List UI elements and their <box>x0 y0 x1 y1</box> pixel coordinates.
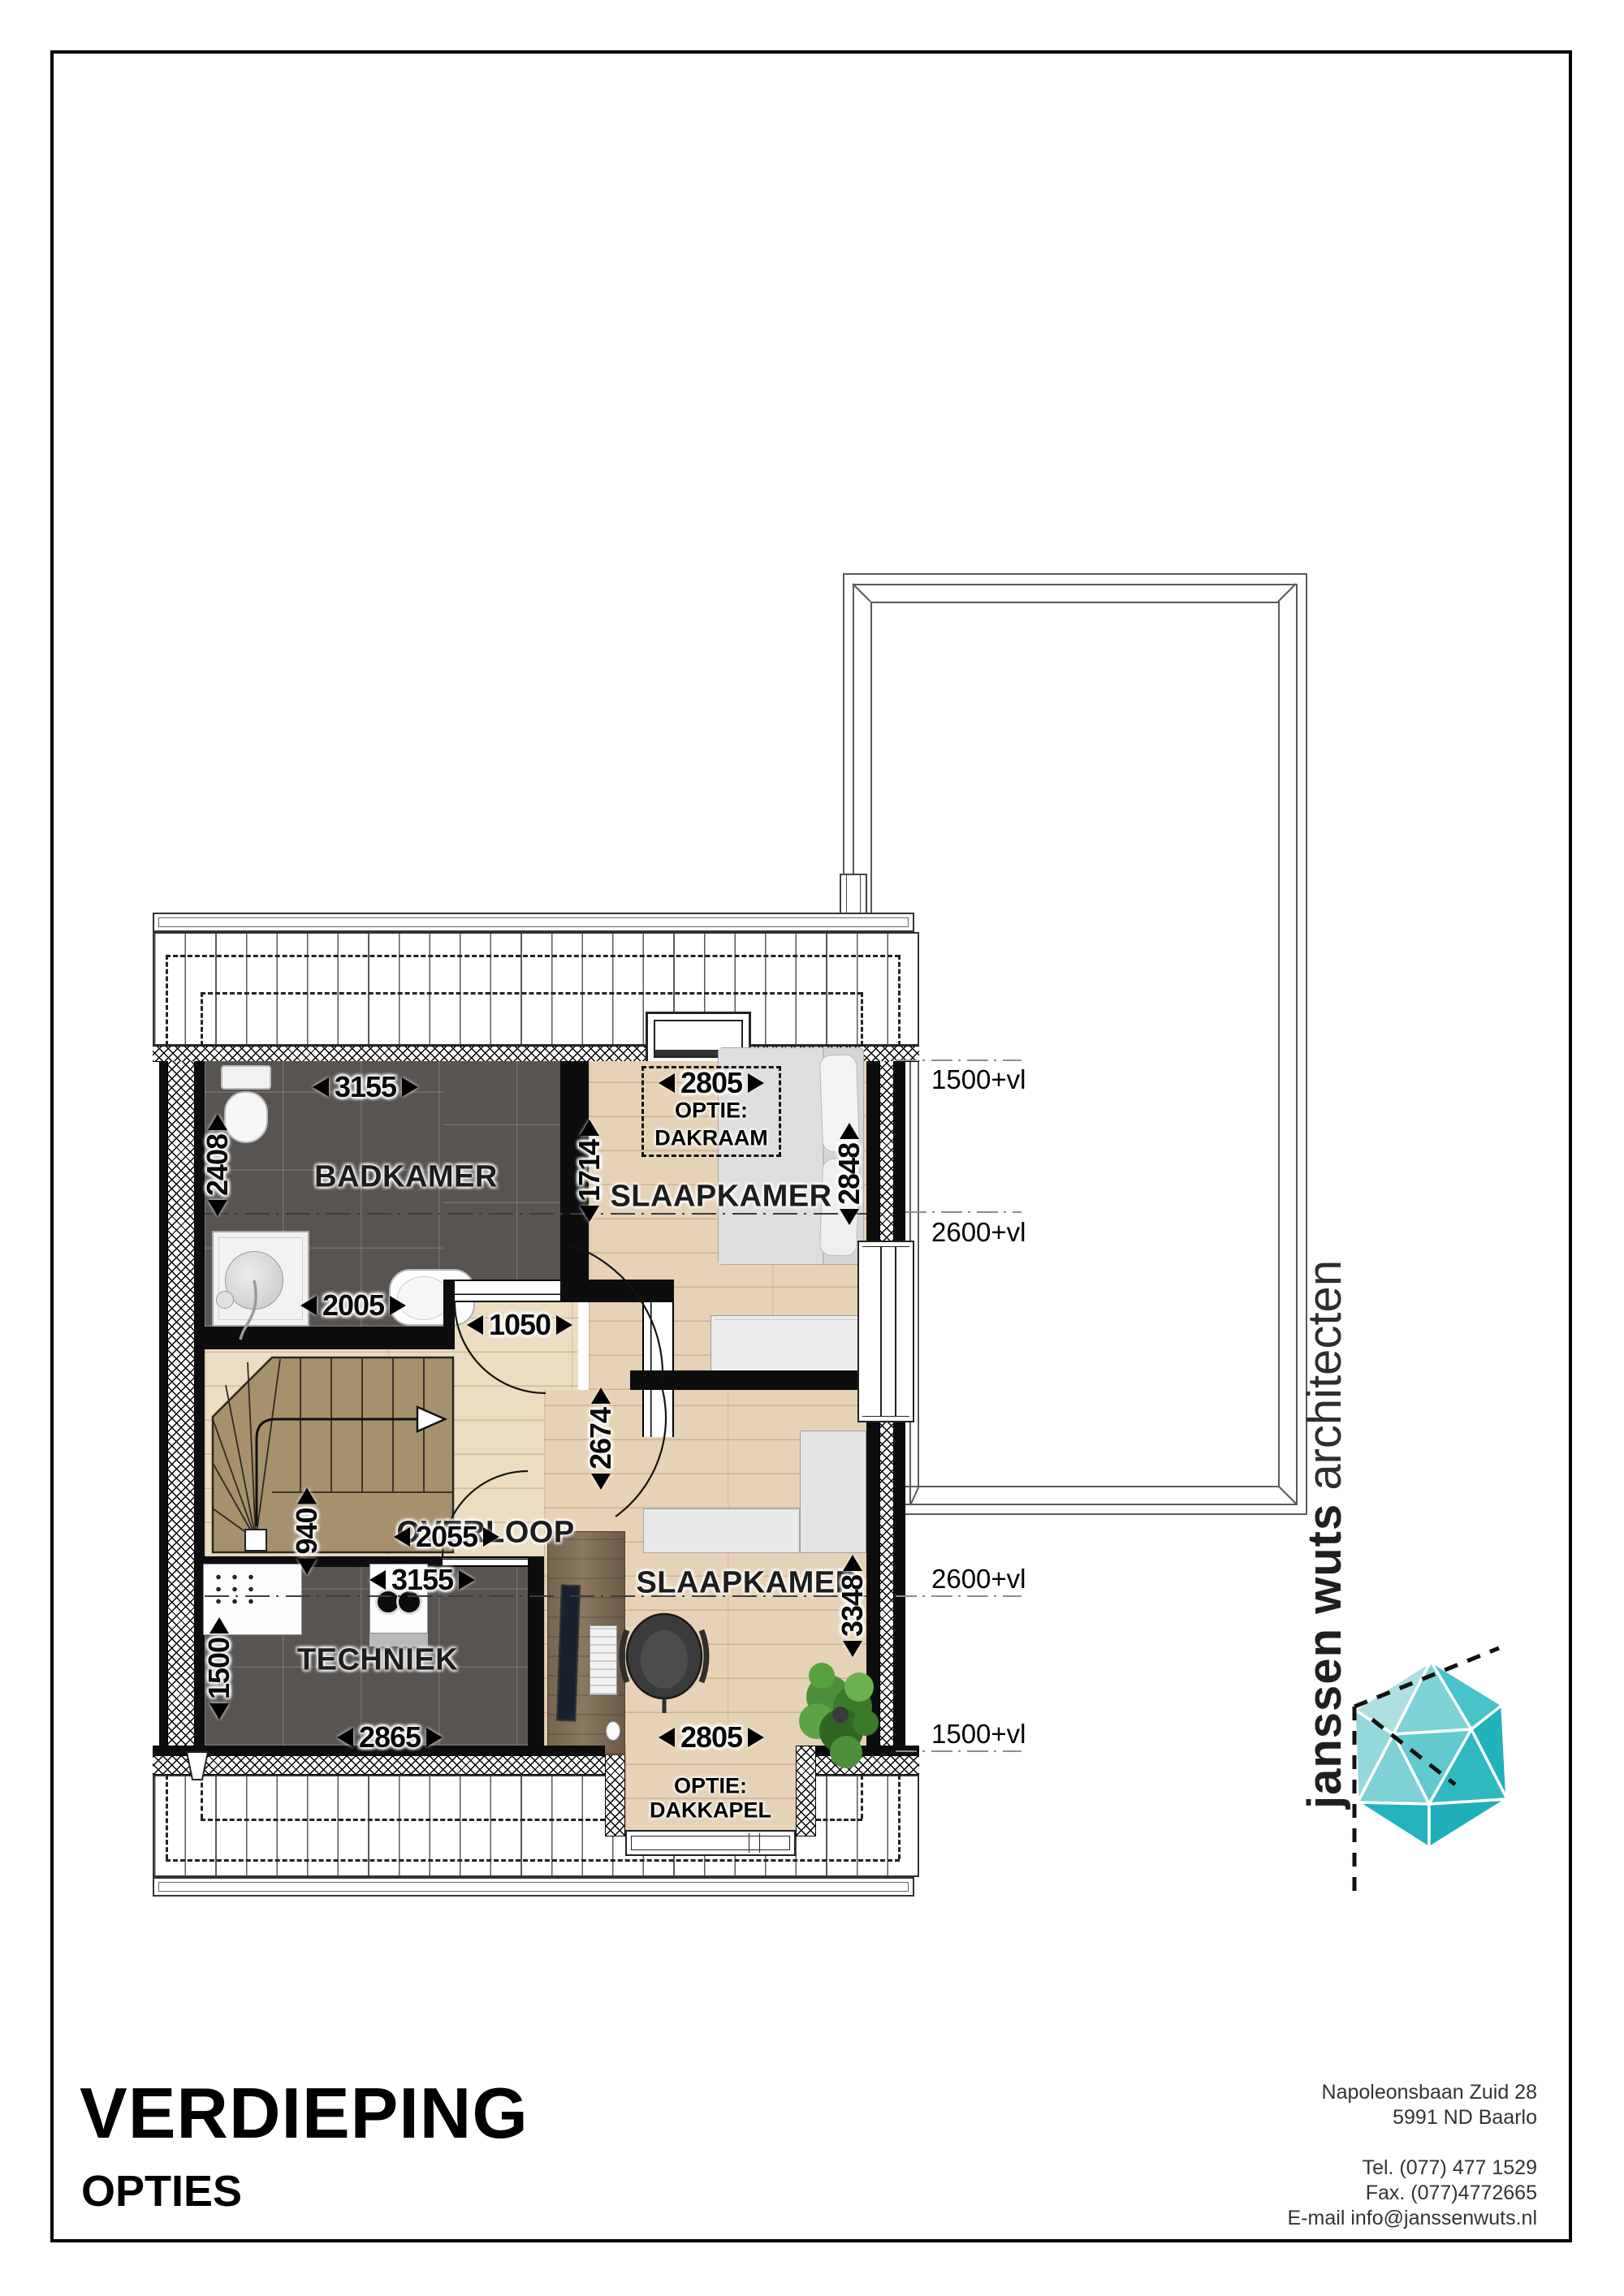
level-label-4: 1500+vl <box>931 1719 1026 1750</box>
logo-wordmark: janssen wuts architecten <box>1298 1289 1352 1809</box>
drawing-subtitle: OPTIES <box>81 2166 242 2216</box>
roof-dashed-stub-top-1 <box>166 955 168 1046</box>
desk-mouse <box>606 1721 620 1741</box>
exterior-wall-left-outer <box>159 1061 167 1755</box>
room-label-tech: TECHNIEK <box>297 1643 458 1678</box>
exterior-wall-bottom-hatch2 <box>816 1755 919 1775</box>
dim-stairs: 940 <box>290 1487 324 1574</box>
room-label-bedroom1: SLAAPKAMER <box>610 1180 831 1215</box>
dakkapel-option-name: DAKKAPEL <box>650 1798 771 1823</box>
dakkapel-window <box>625 1830 796 1856</box>
drawing-title: VERDIEPING <box>80 2072 529 2155</box>
dim-bedroom2-depth: 3348 <box>836 1555 870 1657</box>
bedroom1-west-wall <box>642 1280 674 1302</box>
level-label-3: 2600+vl <box>931 1564 1026 1595</box>
roof-dashed-stub-bot-2 <box>861 1775 863 1819</box>
dim-tech-bottom: 2865 <box>337 1720 443 1754</box>
dim-bathroom-depth: 2408 <box>201 1114 235 1216</box>
dim-bedroom1-width: 2805 <box>659 1066 764 1100</box>
roof-dashed-stub-bot-3 <box>166 1775 168 1859</box>
roof-fascia-bottom <box>153 1877 914 1897</box>
dim-bathroom-width: 3155 <box>313 1070 418 1104</box>
neighbour-frame-outer-left-stub <box>853 584 854 914</box>
dakraam-option-name: DAKRAAM <box>654 1126 767 1151</box>
level-label-1: 1500+vl <box>931 1064 1026 1095</box>
level-line-1 <box>896 1060 1021 1061</box>
exterior-wall-bottom-hatch1 <box>153 1755 605 1775</box>
roof-dashed-stub-top-2 <box>898 955 901 1046</box>
dim-bathroom-right: 1714 <box>572 1120 607 1222</box>
roof-dashed-line-inner-top <box>201 992 862 995</box>
level-line-3 <box>896 1595 1021 1597</box>
neighbour-frame-inner <box>870 602 1280 1487</box>
address-email: E-mail info@janssenwuts.nl <box>1288 2206 1537 2231</box>
bedroom1-window <box>857 1241 914 1422</box>
neighbour-frame-inner-left-stub <box>870 602 872 914</box>
address-block: Napoleonsbaan Zuid 28 5991 ND Baarlo Tel… <box>1288 2080 1537 2231</box>
logo-bold: janssen wuts <box>1298 1504 1351 1809</box>
bedroom-divider-wall <box>630 1370 866 1390</box>
bedroom2-cabinet <box>643 1508 800 1553</box>
dim-landing-width: 2055 <box>394 1520 499 1554</box>
roof-fascia-top <box>153 913 914 932</box>
address-city: 5991 ND Baarlo <box>1288 2105 1537 2130</box>
level-label-2: 2600+vl <box>931 1217 1026 1248</box>
roof-planks-top <box>153 932 919 1046</box>
roof-dashed-line-inner-bottom-r <box>816 1819 862 1821</box>
dim-bedroom2-width: 2805 <box>659 1720 764 1754</box>
address-tel: Tel. (077) 477 1529 <box>1288 2156 1537 2181</box>
exterior-wall-left-insulation <box>167 1061 195 1755</box>
landing-corner-wall <box>589 1280 642 1302</box>
toilet <box>221 1065 271 1090</box>
dim-shower: 2005 <box>300 1288 406 1323</box>
address-street: Napoleonsbaan Zuid 28 <box>1288 2080 1537 2105</box>
bedroom1-door-threshold <box>642 1302 674 1370</box>
page: 1500+vl 2600+vl 2600+vl 1500+vl BADKAMER… <box>0 0 1624 2296</box>
roof-dashed-line-outer-bottom <box>166 1859 900 1862</box>
dim-tech-width: 3155 <box>369 1563 475 1597</box>
dakkapel-side-wall-left <box>605 1746 625 1836</box>
chimney <box>840 874 867 916</box>
desk-keyboard <box>590 1625 617 1695</box>
roof-dashed-line-inner-bottom-l <box>201 1819 605 1821</box>
room-label-bathroom: BADKAMER <box>314 1160 498 1195</box>
dim-landing-depth: 2674 <box>584 1388 618 1490</box>
bathroom-wall-jog <box>443 1280 455 1349</box>
roof-dashed-stub-bot-1 <box>201 1775 203 1819</box>
logo-light: architecten <box>1298 1260 1351 1491</box>
room-label-bedroom2: SLAAPKAMER <box>636 1566 857 1601</box>
bedroom2-wardrobe <box>800 1431 866 1553</box>
dim-door: 1050 <box>467 1308 572 1342</box>
dim-tech-left: 1500 <box>202 1617 236 1720</box>
address-fax: Fax. (077)4772665 <box>1288 2181 1537 2206</box>
roof-dashed-stub-bot-4 <box>898 1775 901 1859</box>
dim-bedroom1-depth: 2848 <box>832 1123 866 1225</box>
dakkapel-side-wall-right <box>796 1746 816 1836</box>
level-line-2 <box>905 1211 1021 1213</box>
neighbour-outline-outer-left-stub <box>843 573 844 914</box>
neighbour-frame-left-line-b <box>918 1061 919 1487</box>
shower-drain <box>216 1291 234 1309</box>
tech-bedroom2-wall <box>528 1556 544 1755</box>
level-line-4 <box>896 1750 1021 1752</box>
dakkapel-option-label: OPTIE: <box>674 1774 747 1799</box>
bedroom2-door-threshold <box>642 1390 674 1437</box>
roof-dashed-stub-top-4 <box>861 992 863 1046</box>
bathroom-door-threshold <box>455 1280 560 1302</box>
bathroom-wall-bottom-left <box>205 1327 443 1349</box>
roof-dashed-line-outer-top <box>166 955 900 957</box>
roof-dashed-stub-top-3 <box>201 992 203 1046</box>
dakraam-option-label: OPTIE: <box>675 1098 748 1124</box>
